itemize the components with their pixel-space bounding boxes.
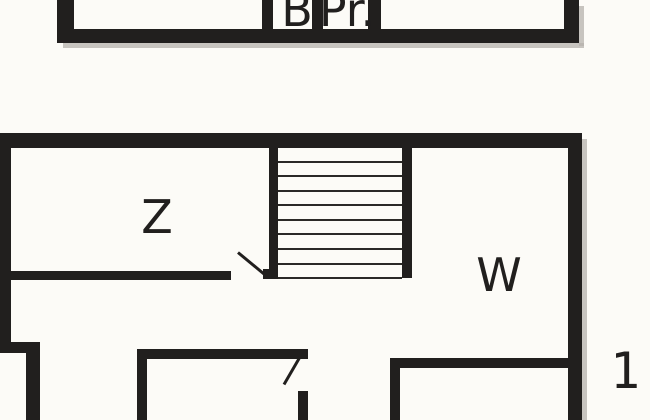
mid-room-left-wall — [137, 349, 147, 420]
upper-plan-bottom-shadow — [63, 43, 584, 48]
stair-tread — [278, 235, 402, 250]
bottom-right-room-left-wall — [390, 358, 400, 420]
stair-wall-left — [269, 148, 278, 269]
floor-plan-canvas: B Pr. Z W 1. — [0, 0, 650, 420]
room-label-b: B — [281, 0, 313, 33]
upper-plan-right-shadow — [579, 6, 584, 46]
room-label-pr: Pr. — [319, 0, 375, 33]
stair-tread — [278, 250, 402, 265]
stair-tread — [278, 177, 402, 192]
stair-tread — [278, 206, 402, 221]
staircase — [278, 148, 402, 279]
floor-number-label: 1. — [610, 346, 650, 396]
lower-exterior-wall-left-inset — [26, 342, 40, 420]
lower-exterior-wall-right — [568, 148, 582, 420]
w-room-bottom-wall — [390, 358, 582, 368]
upper-exterior-wall-right — [564, 0, 579, 43]
room-label-w: W — [476, 252, 521, 298]
lower-exterior-wall-left — [0, 148, 11, 352]
lower-exterior-wall-top — [0, 133, 582, 148]
room-z-bottom-wall — [0, 271, 231, 280]
stair-wall-right — [402, 148, 412, 278]
lower-plan-right-shadow — [582, 139, 587, 420]
room-label-z: Z — [141, 194, 173, 240]
stair-tread — [278, 148, 402, 163]
stair-wall-left-foot — [263, 269, 278, 279]
stair-tread — [278, 163, 402, 178]
stair-tread — [278, 221, 402, 236]
upper-interior-wall-1 — [262, 0, 273, 29]
stair-tread — [278, 192, 402, 207]
mid-room-top-wall — [137, 349, 308, 359]
mid-room-right-wall-lower — [298, 391, 308, 420]
stair-tread — [278, 265, 402, 280]
